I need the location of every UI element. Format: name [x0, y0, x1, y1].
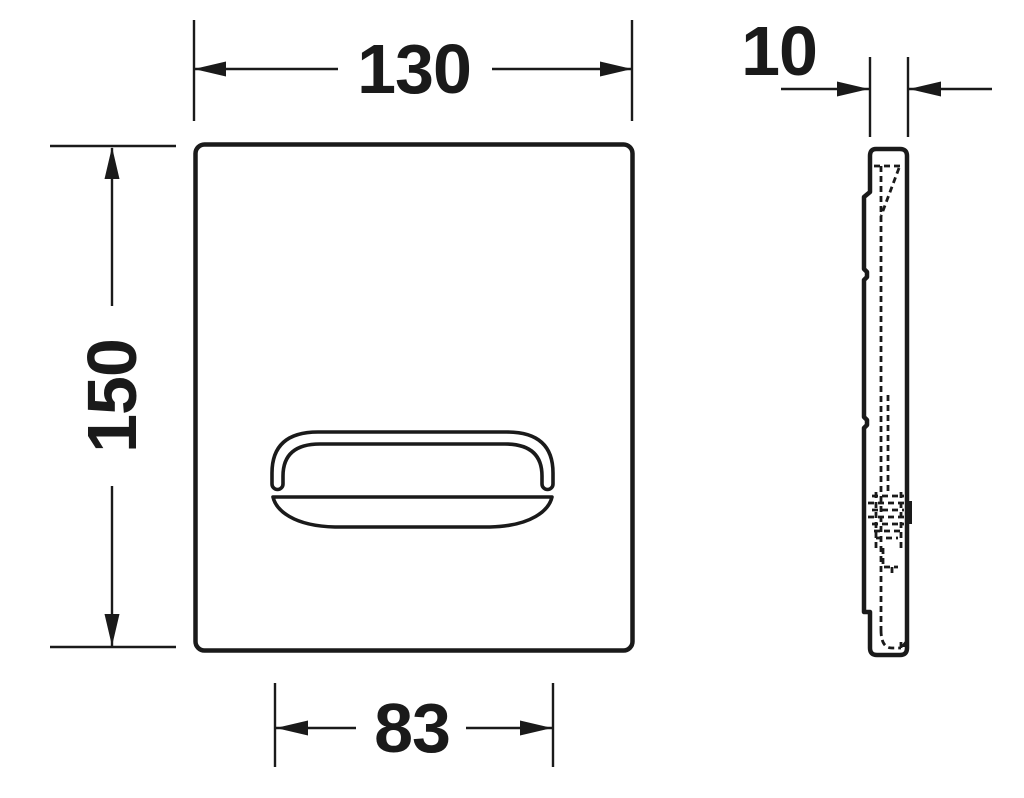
side-view: [864, 149, 912, 655]
front-view: [196, 145, 633, 651]
dimension-height: 150: [50, 146, 176, 647]
arrowhead-left-icon: [276, 721, 308, 736]
side-profile-outline: [864, 149, 907, 655]
arrowhead-right-icon: [837, 82, 869, 97]
side-clip-lug: [905, 501, 912, 524]
flush-button-arch: [272, 432, 553, 490]
side-hidden-lines: [874, 166, 901, 648]
arrowhead-right-icon: [600, 62, 632, 77]
dimension-height-value: 150: [73, 339, 151, 453]
dimension-depth: 10: [741, 12, 992, 137]
dimension-depth-value: 10: [741, 12, 817, 90]
flush-button-tray: [273, 497, 552, 527]
dimension-width: 130: [194, 20, 632, 121]
technical-drawing-page: 130 150 10: [0, 0, 1024, 798]
arrowhead-left-icon: [194, 62, 226, 77]
arrowhead-right-icon: [520, 721, 552, 736]
technical-drawing-canvas: 130 150 10: [0, 0, 1024, 798]
arrowhead-up-icon: [105, 147, 120, 179]
dimension-width-value: 130: [357, 30, 471, 108]
arrowhead-down-icon: [105, 614, 120, 646]
plate-outline: [196, 145, 633, 651]
arrowhead-left-icon: [909, 82, 941, 97]
dimension-button-width-value: 83: [374, 689, 450, 767]
dimension-button-width: 83: [275, 683, 553, 767]
